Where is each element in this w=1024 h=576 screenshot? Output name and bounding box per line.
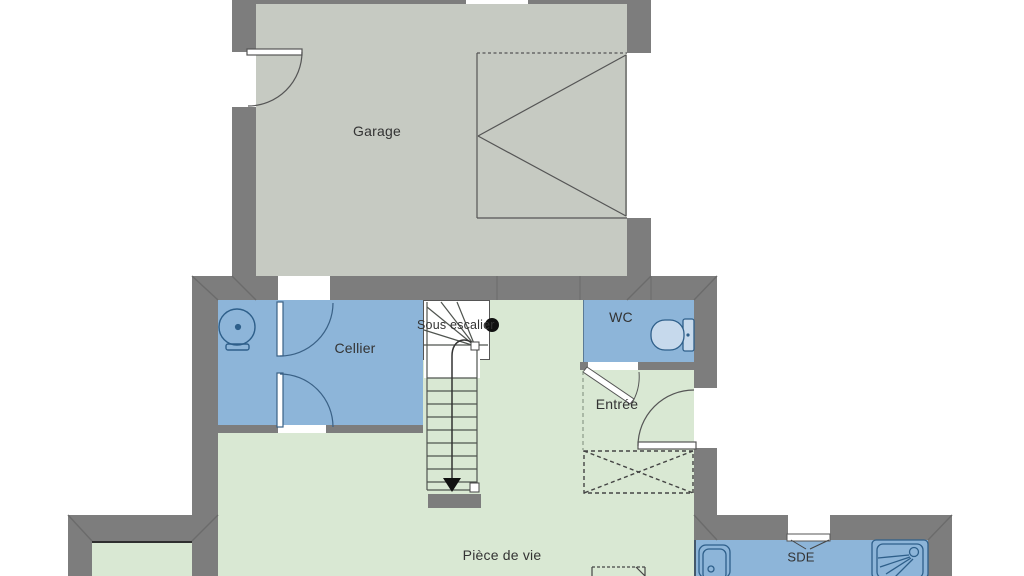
label-entree: Entrée bbox=[596, 396, 638, 412]
wall-sde-band-left bbox=[694, 515, 788, 540]
wall-garage-top-left bbox=[256, 0, 466, 4]
room-garage-floor bbox=[256, 4, 627, 276]
label-garage: Garage bbox=[353, 123, 401, 139]
label-sous-escalier: Sous escalier bbox=[417, 318, 495, 332]
wall-main-top-band-right bbox=[330, 276, 717, 300]
wall-wc-partition-right bbox=[638, 362, 694, 370]
wall-main-top-band-left bbox=[192, 276, 278, 300]
wall-garage-left-lower bbox=[232, 107, 256, 276]
wall-garage-left-upper bbox=[232, 0, 256, 52]
label-wc: WC bbox=[609, 309, 633, 325]
under-stair-zone-lower bbox=[424, 358, 480, 378]
room-outbuilding-floor bbox=[92, 541, 194, 576]
wall-stair-stub bbox=[428, 494, 481, 508]
label-piece-de-vie: Pièce de vie bbox=[463, 547, 542, 563]
wall-wc-partition-left bbox=[580, 362, 588, 370]
room-cellier-floor bbox=[218, 300, 423, 425]
wall-outbuilding-left bbox=[68, 541, 92, 576]
floor-plan: Garage Cellier Sous escalier WC Entrée P… bbox=[0, 0, 1024, 576]
wall-sde-right bbox=[928, 540, 952, 576]
wall-outbuilding-band bbox=[68, 515, 192, 541]
label-cellier: Cellier bbox=[334, 340, 375, 356]
wall-cellier-partition-left bbox=[218, 425, 278, 433]
wall-garage-right-upper bbox=[627, 0, 651, 53]
room-wc-floor bbox=[583, 300, 695, 362]
room-hall-floor bbox=[488, 300, 583, 576]
wall-garage-top-right bbox=[528, 0, 627, 4]
wall-right-upper bbox=[694, 300, 717, 388]
wall-garage-right-lower bbox=[627, 218, 651, 276]
room-living-floor bbox=[218, 433, 423, 576]
wall-right-lower bbox=[694, 448, 717, 515]
wall-main-left-column bbox=[192, 300, 218, 576]
label-sde: SDE bbox=[787, 550, 814, 565]
room-stair-floor bbox=[423, 358, 488, 576]
wall-sde-band-right bbox=[830, 515, 952, 540]
wall-cellier-partition-right bbox=[326, 425, 423, 433]
